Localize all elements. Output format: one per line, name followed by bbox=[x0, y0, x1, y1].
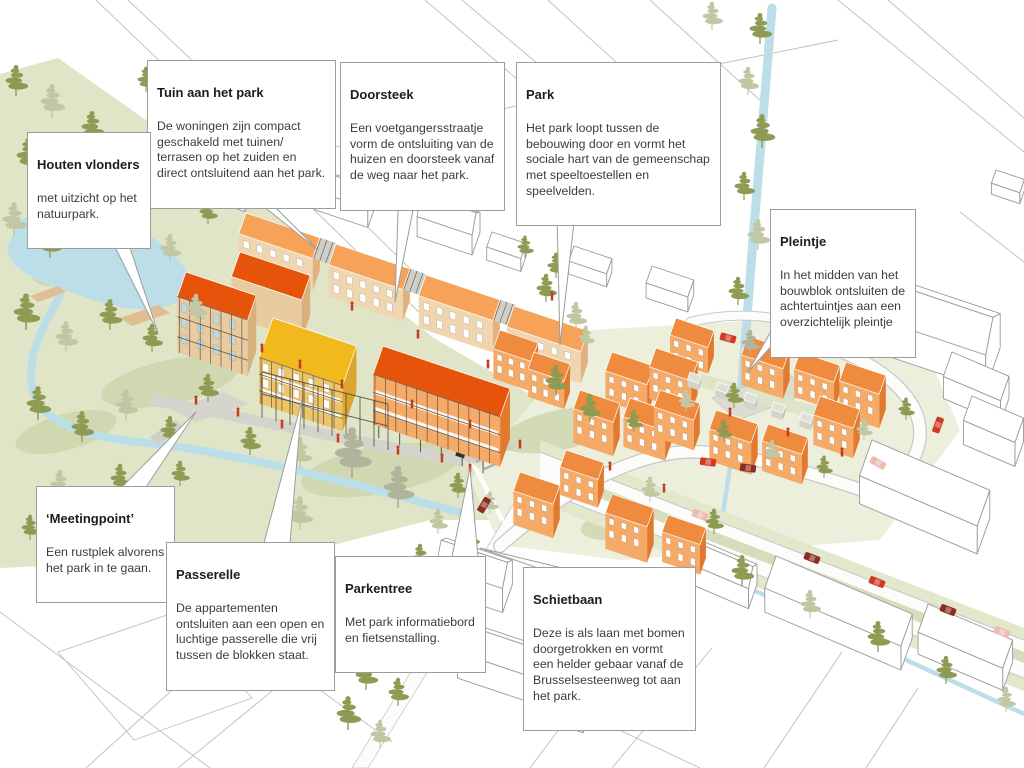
callout-passerelle: Passerelle De appartementen ontsluiten a… bbox=[166, 542, 335, 691]
callout-meetingpoint: ‘Meetingpoint’ Een rustplek alvorens het… bbox=[36, 486, 175, 603]
callout-body: Een voetgangersstraatje vorm de ontsluit… bbox=[350, 121, 494, 183]
callout-doorsteek: Doorsteek Een voetgangersstraatje vorm d… bbox=[340, 62, 505, 211]
callout-schietbaan: Schietbaan Deze is als laan met bomen do… bbox=[523, 567, 696, 731]
callout-tuin-aan-het-park: Tuin aan het park De woningen zijn compa… bbox=[147, 60, 336, 209]
callout-title: Doorsteek bbox=[350, 87, 494, 103]
callout-houten-vlonders: Houten vlonders met uitzicht op het natu… bbox=[27, 132, 151, 249]
callout-body: Het park loopt tussen de bebouwing door … bbox=[526, 121, 710, 199]
callout-title: Tuin aan het park bbox=[157, 85, 325, 101]
callout-title: Parkentree bbox=[345, 581, 475, 597]
callout-title: Pleintje bbox=[780, 234, 905, 250]
callout-body: met uitzicht op het natuurpark. bbox=[37, 191, 140, 222]
callout-title: Houten vlonders bbox=[37, 157, 140, 173]
callout-parkentree: Parkentree Met park informatiebord en fi… bbox=[335, 556, 486, 673]
callout-body: In het midden van het bouwblok ontsluite… bbox=[780, 268, 905, 330]
callout-park: Park Het park loopt tussen de bebouwing … bbox=[516, 62, 721, 226]
masterplan-illustration: Tuin aan het park De woningen zijn compa… bbox=[0, 0, 1024, 768]
callout-body: Met park informatiebord en fietsenstalli… bbox=[345, 615, 475, 646]
callout-title: Schietbaan bbox=[533, 592, 685, 608]
callout-body: De appartementen ontsluiten aan een open… bbox=[176, 601, 324, 663]
callout-pleintje: Pleintje In het midden van het bouwblok … bbox=[770, 209, 916, 358]
callout-title: Park bbox=[526, 87, 710, 103]
callout-title: Passerelle bbox=[176, 567, 324, 583]
callout-body: Deze is als laan met bomen doorgetrokken… bbox=[533, 626, 685, 704]
callout-body: De woningen zijn compact geschakeld met … bbox=[157, 119, 325, 181]
callout-title: ‘Meetingpoint’ bbox=[46, 511, 164, 527]
callout-body: Een rustplek alvorens het park in te gaa… bbox=[46, 545, 164, 576]
